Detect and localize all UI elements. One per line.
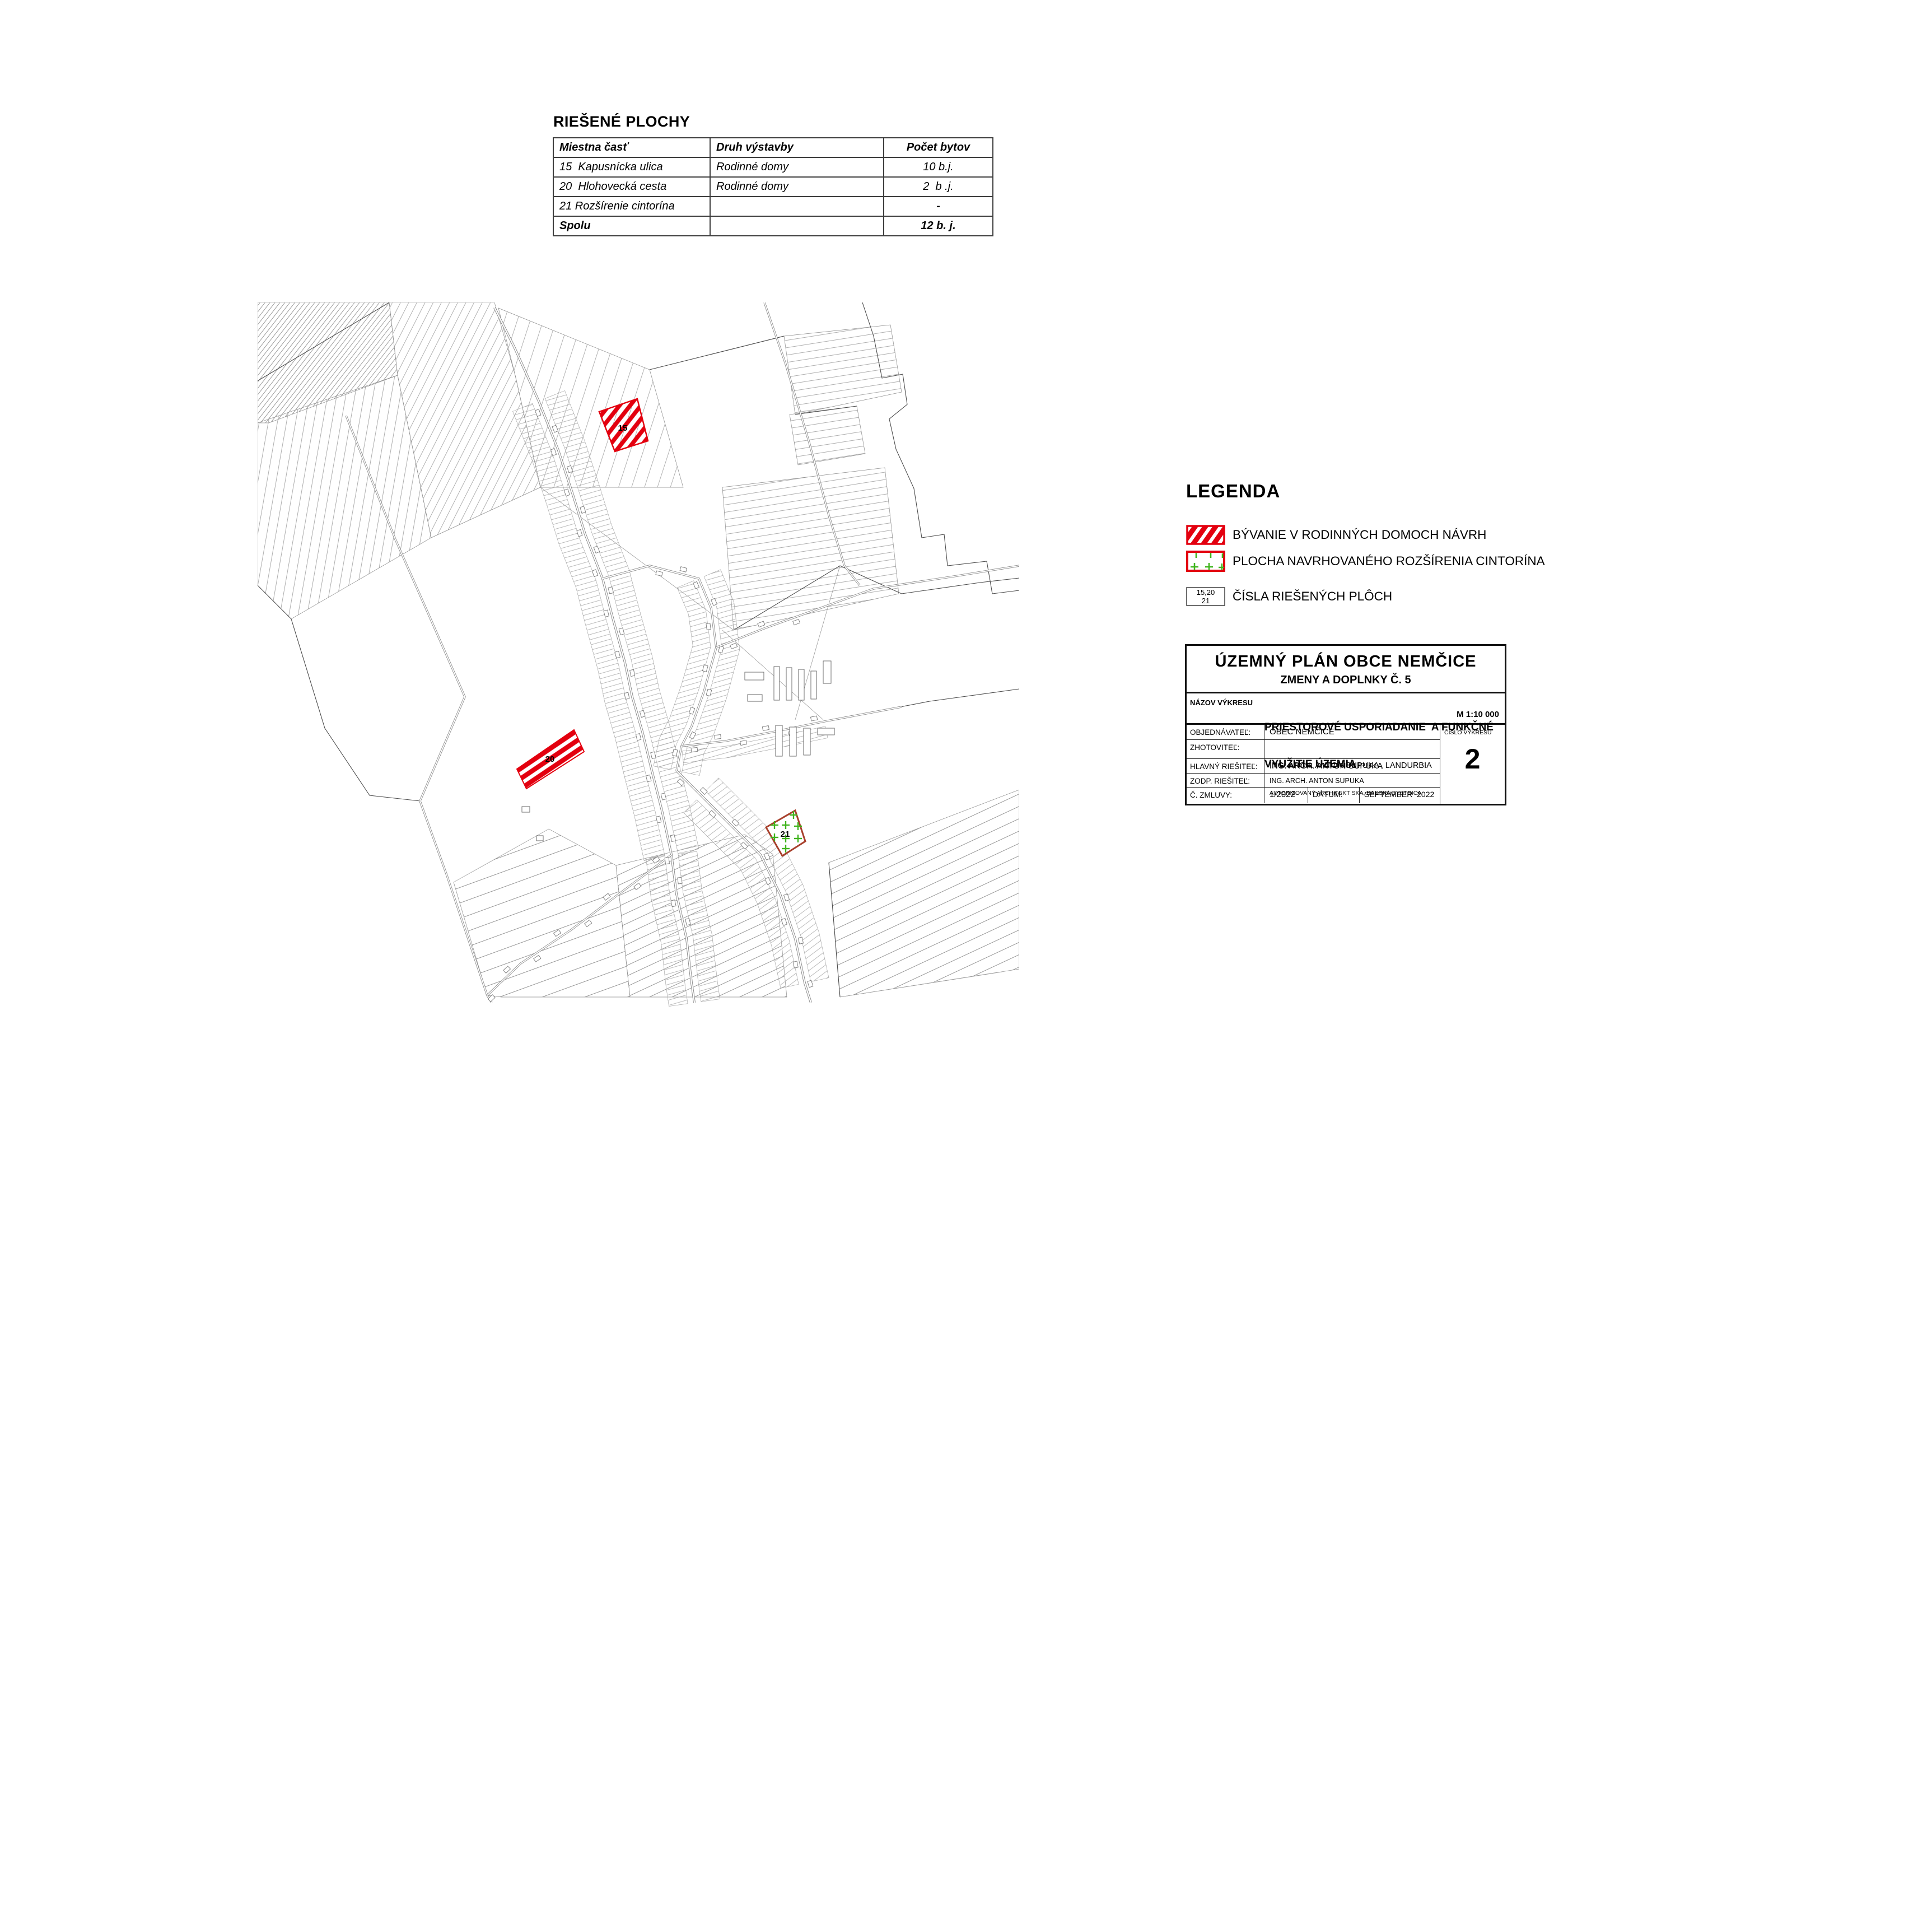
legend-item-housing: BÝVANIE V RODINNÝCH DOMOCH NÁVRH <box>1186 525 1486 545</box>
solved-areas-table: Miestna časť Druh výstavby Počet bytov 1… <box>553 137 993 236</box>
table-row: 20 Hlohovecká cesta Rodinné domy 2 b .j. <box>553 177 993 197</box>
col-header: Počet bytov <box>884 138 993 157</box>
col-header: Miestna časť <box>553 138 710 157</box>
drawing-name-row: NÁZOV VÝKRESU PRIESTOROVÉ USPORIADANIE A… <box>1187 692 1505 725</box>
map-scale: M 1:10 000 <box>1457 710 1499 719</box>
solved-areas-title: RIEŠENÉ PLOCHY <box>553 113 690 131</box>
plan-subtitle: ZMENY A DOPLNKY Č. 5 <box>1187 674 1505 687</box>
swatch-number-bottom: 21 <box>1202 597 1210 605</box>
plan-title: ÚZEMNÝ PLÁN OBCE NEMČICE <box>1187 653 1505 671</box>
drawing-name-line1: PRIESTOROVÉ USPORIADANIE A FUNKČNÉ <box>1264 721 1494 734</box>
legend-label: BÝVANIE V RODINNÝCH DOMOCH NÁVRH <box>1233 528 1486 542</box>
contract-label: Č. ZMLUVY: <box>1187 788 1264 803</box>
contractor-label: ZHOTOVITEĽ: <box>1187 740 1264 758</box>
area-label-15: 15 <box>618 423 628 433</box>
table-header-row: Miestna časť Druh výstavby Počet bytov <box>553 138 993 157</box>
drawing-name-line2: VYUŽITIE ÚZEMIA <box>1264 758 1494 771</box>
cadastral-map: 15 20 21 <box>258 302 1019 1025</box>
area-label-20: 20 <box>545 754 555 764</box>
plan-sheet: RIEŠENÉ PLOCHY Miestna časť Druh výstavb… <box>0 0 1932 1919</box>
client-label: OBJEDNÁVATEĽ: <box>1187 725 1264 739</box>
area-label-21: 21 <box>781 830 790 839</box>
title-block-header: ÚZEMNÝ PLÁN OBCE NEMČICE ZMENY A DOPLNKY… <box>1187 646 1505 692</box>
legend-label: ČÍSLA RIEŠENÝCH PLÔCH <box>1233 589 1392 604</box>
col-header: Druh výstavby <box>710 138 884 157</box>
table-row: 15 Kapusnícka ulica Rodinné domy 10 b.j. <box>553 157 993 177</box>
cemetery-swatch-icon <box>1186 551 1225 572</box>
swatch-number-top: 15,20 <box>1197 588 1215 597</box>
numbers-box-icon: 15,20 21 <box>1186 587 1225 606</box>
legend: LEGENDA BÝVANIE V RODINNÝCH DOMOCH NÁVRH… <box>1186 477 1668 623</box>
responsible-designer-label: ZODP. RIEŠITEĽ: <box>1187 774 1264 787</box>
table-total-row: Spolu 12 b. j. <box>553 216 993 236</box>
title-block: ÚZEMNÝ PLÁN OBCE NEMČICE ZMENY A DOPLNKY… <box>1185 644 1506 805</box>
legend-item-area-numbers: 15,20 21 ČÍSLA RIEŠENÝCH PLÔCH <box>1186 587 1392 606</box>
legend-title: LEGENDA <box>1186 481 1280 502</box>
red-hatch-swatch-icon <box>1186 525 1225 545</box>
legend-label: PLOCHA NAVRHOVANÉHO ROZŠÍRENIA CINTORÍNA <box>1233 554 1545 569</box>
legend-item-cemetery: PLOCHA NAVRHOVANÉHO ROZŠÍRENIA CINTORÍNA <box>1186 551 1545 572</box>
table-row: 21 Rozšírenie cintorína - <box>553 197 993 216</box>
drawing-name-label: NÁZOV VÝKRESU <box>1187 693 1264 723</box>
chief-designer-label: HLAVNÝ RIEŠITEĽ: <box>1187 759 1264 773</box>
